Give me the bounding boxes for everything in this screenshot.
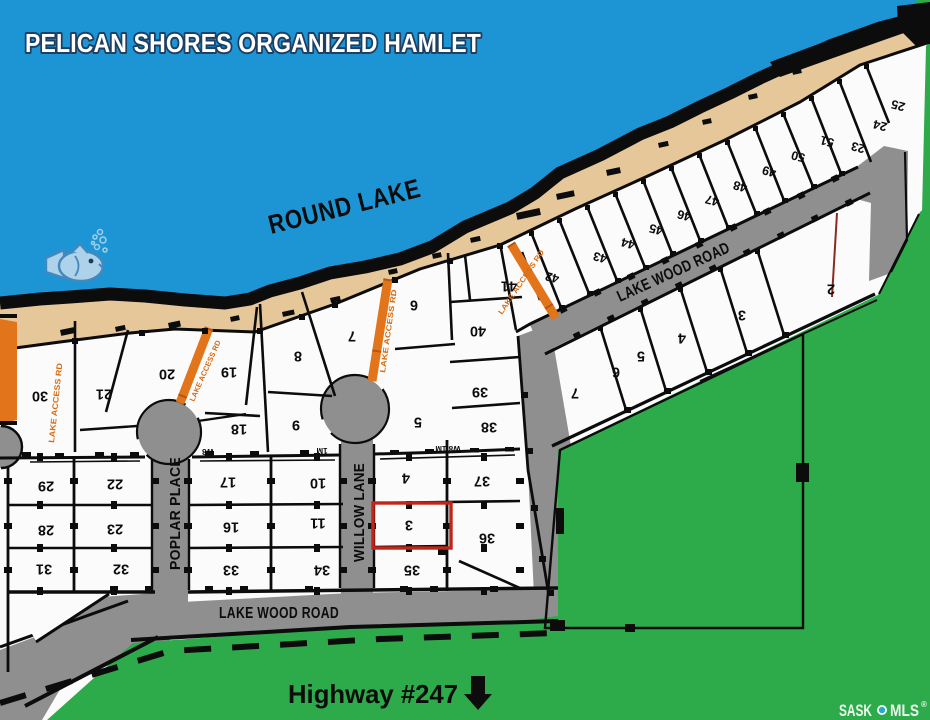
svg-text:3: 3	[738, 306, 746, 322]
svg-text:3: 3	[405, 516, 413, 532]
svg-text:6: 6	[612, 363, 620, 379]
svg-text:W8 1M: W8 1M	[435, 444, 461, 453]
svg-text:37: 37	[474, 472, 490, 488]
svg-text:5: 5	[414, 413, 422, 429]
svg-text:8: 8	[294, 347, 302, 363]
svg-text:W8: W8	[201, 447, 214, 456]
svg-text:4: 4	[402, 469, 410, 485]
svg-text:PELICAN SHORES ORGANIZED HAMLE: PELICAN SHORES ORGANIZED HAMLET	[25, 28, 481, 58]
svg-text:28: 28	[38, 521, 54, 537]
svg-text:16: 16	[223, 518, 239, 534]
svg-text:7: 7	[571, 384, 579, 400]
svg-text:18: 18	[231, 420, 247, 436]
svg-text:MLS: MLS	[890, 702, 919, 720]
svg-text:32: 32	[113, 560, 129, 576]
svg-text:4: 4	[678, 329, 686, 345]
svg-text:®: ®	[921, 700, 927, 709]
svg-text:Highway #247: Highway #247	[288, 679, 458, 709]
svg-text:41: 41	[501, 277, 517, 293]
svg-text:40: 40	[470, 322, 486, 338]
svg-text:38: 38	[481, 418, 497, 434]
svg-text:34: 34	[314, 561, 330, 577]
svg-text:5: 5	[637, 347, 645, 363]
svg-text:11: 11	[310, 514, 325, 530]
svg-text:23: 23	[107, 520, 123, 536]
svg-text:1M: 1M	[316, 446, 327, 455]
svg-text:36: 36	[479, 529, 495, 545]
svg-text:6: 6	[410, 296, 418, 312]
svg-text:29: 29	[38, 477, 54, 493]
svg-text:30: 30	[32, 387, 48, 403]
svg-text:33: 33	[223, 561, 239, 577]
svg-text:9: 9	[292, 416, 300, 432]
svg-text:2: 2	[827, 280, 835, 296]
svg-text:10: 10	[310, 474, 326, 490]
svg-text:20: 20	[159, 365, 175, 381]
svg-text:WILLOW LANE: WILLOW LANE	[352, 463, 368, 562]
svg-text:17: 17	[220, 473, 236, 489]
svg-text:LAKE WOOD ROAD: LAKE WOOD ROAD	[219, 605, 339, 622]
svg-text:7: 7	[348, 327, 356, 343]
svg-text:19: 19	[221, 363, 237, 379]
svg-text:31: 31	[36, 560, 52, 576]
svg-text:SASK: SASK	[839, 702, 872, 720]
svg-text:21: 21	[96, 385, 112, 401]
svg-text:22: 22	[107, 475, 123, 491]
svg-text:35: 35	[404, 561, 420, 577]
svg-text:POPLAR PLACE: POPLAR PLACE	[168, 457, 184, 570]
svg-text:39: 39	[472, 383, 488, 399]
